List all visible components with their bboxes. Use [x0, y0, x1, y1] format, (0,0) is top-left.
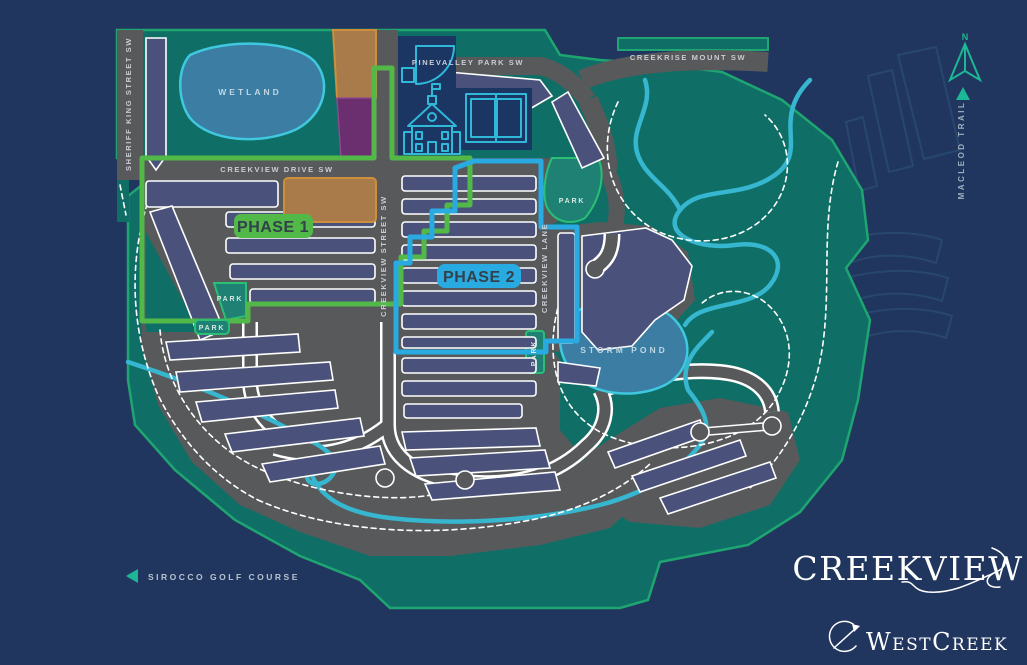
- park-chip: PARK: [195, 320, 229, 334]
- park-chip-label: PARK: [199, 325, 226, 332]
- park-north-label: PARK: [559, 198, 586, 205]
- commercial-block-top: [333, 30, 376, 98]
- creekview-street-label: CREEKVIEW STREET SW: [379, 195, 388, 317]
- macleod-trail-label: MACLEOD TRAIL: [957, 101, 966, 200]
- park-lane-label: PARK: [531, 340, 538, 367]
- phase2-badge: PHASE 2: [437, 264, 521, 288]
- compass-north-label: N: [962, 32, 969, 42]
- creekview-masterplan-map: SHERIFF KING STREET SW CREEKVIEW DRIVE S…: [0, 0, 1027, 665]
- pinevalley-park-label: PINEVALLEY PARK SW: [412, 58, 524, 67]
- golf-course-label: SIROCCO GOLF COURSE: [148, 572, 300, 582]
- westcreek-logo-text: WestCreek: [866, 628, 1008, 656]
- park-phase1-label: PARK: [217, 296, 244, 303]
- phase1-badge: PHASE 1: [234, 214, 313, 238]
- sheriff-king-label: SHERIFF KING STREET SW: [124, 37, 133, 171]
- phase2-badge-label: PHASE 2: [443, 269, 515, 286]
- wetland-label: WETLAND: [218, 87, 282, 97]
- creekrise-mount-label: CREEKRISE MOUNT SW: [630, 53, 746, 62]
- storm-pond-label: STORM POND: [580, 345, 667, 355]
- creekview-lane-label: CREEKVIEW LANE: [540, 223, 549, 313]
- creekview-logo: CREEKVIEW: [792, 548, 1023, 592]
- multifamily-block: [337, 98, 376, 158]
- golf-course-pointer: SIROCCO GOLF COURSE: [126, 569, 300, 583]
- creekrise-strip: [618, 38, 768, 50]
- creekview-drive-label: CREEKVIEW DRIVE SW: [220, 165, 333, 174]
- phase1-badge-label: PHASE 1: [237, 219, 309, 236]
- map-canvas: SHERIFF KING STREET SW CREEKVIEW DRIVE S…: [0, 0, 1027, 665]
